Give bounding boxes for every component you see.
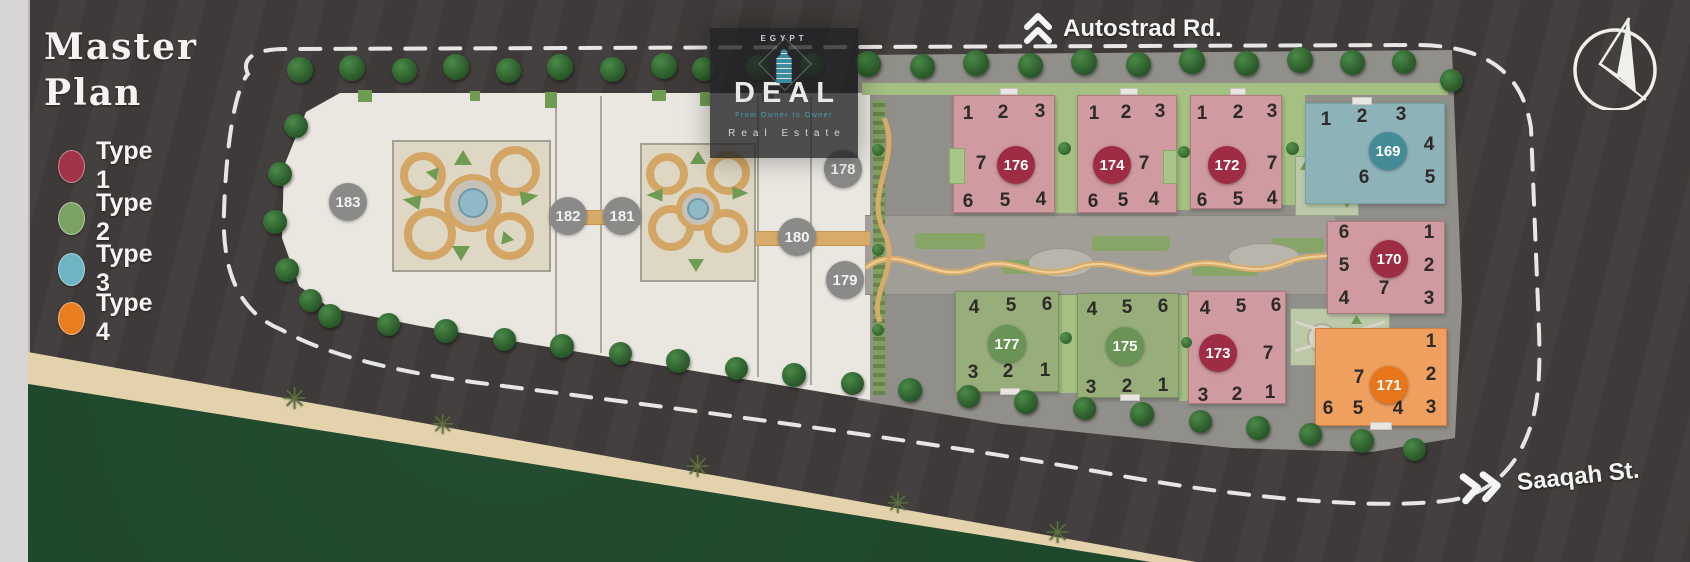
tree-icon [1130,402,1154,426]
amenity-green-patch [1092,236,1170,251]
plot-circle-182: 182 [549,197,587,235]
tree-icon [1287,47,1313,73]
tree-icon [275,258,299,282]
tree-icon [377,313,400,336]
unit-number: 1 [1032,360,1058,382]
unit-number: 1 [1081,103,1107,125]
planter-tab [358,90,372,102]
tree-icon [1340,50,1365,75]
tree-icon [651,53,677,79]
planter-tab [700,92,710,106]
unit-number: 6 [1034,294,1060,316]
tree-icon [299,289,322,312]
unit-number: 2 [995,361,1021,383]
unit-number: 3 [1190,385,1216,407]
unit-number: 5 [1331,255,1357,277]
unit-number: 1 [1313,109,1339,131]
building-badge-172: 172 [1208,146,1246,184]
unit-number: 5 [992,190,1018,212]
bush-icon [1286,142,1299,155]
tree-icon [1014,390,1038,414]
tree-icon [496,58,521,83]
plot-circle-180: 180 [778,218,816,256]
unit-number: 6 [955,191,981,213]
building-badge-175: 175 [1106,327,1144,365]
unit-number: 6 [1315,398,1341,420]
palm-tree-icon: ✳ [685,453,710,483]
south-road-label: Saaqah St. [1457,455,1641,506]
legend-item-type4: Type 4 [58,301,159,335]
planter-tab [652,90,666,101]
building-notch-lawn [1163,150,1177,184]
unit-number: 3 [1416,288,1442,310]
planter-tab [470,91,480,101]
tree-icon [1071,49,1097,75]
building-badge-174: 174 [1093,146,1131,184]
bush-icon [1178,146,1190,158]
type4-color-dot [58,302,85,335]
tree-icon [547,54,573,80]
unit-number: 3 [1388,104,1414,126]
unit-number: 5 [1228,296,1254,318]
north-road-label: Autostrad Rd. [1022,12,1222,46]
tree-icon [318,304,342,328]
tree-icon [268,162,292,186]
chevron-up-icon [1022,12,1054,46]
unit-number: 3 [960,362,986,384]
amenity-green-patch [915,233,985,249]
unit-number: 5 [1417,167,1443,189]
unit-number: 3 [1147,101,1173,123]
tree-icon [957,385,980,408]
unit-number: 7 [968,153,994,175]
unit-number: 4 [1416,134,1442,156]
building-badge-171: 171 [1370,366,1408,404]
tree-icon [666,349,690,373]
unit-number: 4 [1141,189,1167,211]
building-badge-170: 170 [1370,240,1408,278]
legend-item-type2: Type 2 [58,201,159,235]
legend-item-type1: Type 1 [58,149,159,183]
unit-number: 7 [1259,153,1285,175]
unit-number: 4 [961,297,987,319]
building-notch-lawn [949,148,965,184]
left-margin-strip [0,0,30,562]
legend-label: Type 2 [96,189,158,247]
tree-icon [855,51,881,77]
unit-number: 7 [1371,278,1397,300]
unit-number: 3 [1078,377,1104,399]
south-road-name: Saaqah St. [1516,457,1641,498]
type2-color-dot [58,202,85,235]
chevron-right-icon [1457,468,1510,505]
tree-icon [609,342,632,365]
palm-tree-icon: ✳ [1045,519,1070,549]
unit-number: 5 [1345,398,1371,420]
unit-number: 2 [1114,376,1140,398]
bush-icon [1060,332,1072,344]
type1-color-dot [58,150,85,183]
tree-icon [782,363,806,387]
unit-number: 4 [1079,299,1105,321]
ornamental-garden-east [640,143,756,282]
legend-item-type3: Type 3 [58,252,159,286]
bush-icon [872,144,884,156]
tree-icon [1299,423,1322,446]
unit-number: 4 [1192,298,1218,320]
tree-icon [392,58,417,83]
unit-number: 6 [1080,191,1106,213]
plot-circle-179: 179 [826,261,864,299]
tree-icon [434,319,458,343]
palm-tree-icon: ✳ [282,385,307,415]
tree-icon [1126,52,1151,77]
building-badge-169: 169 [1369,132,1407,170]
tree-icon [1179,48,1205,74]
unit-number: 5 [1114,297,1140,319]
legend-label: Type 4 [96,289,158,347]
ornamental-garden-west [392,140,551,272]
building-badge-173: 173 [1199,334,1237,372]
tree-icon [841,372,864,395]
unit-number: 4 [1331,288,1357,310]
north-lawn-strip [862,83,1448,95]
tree-icon [1018,53,1043,78]
tree-icon [725,357,748,380]
unit-number: 6 [1331,222,1357,244]
unit-number: 1 [1150,375,1176,397]
unit-number: 1 [1416,222,1442,244]
unit-number: 2 [990,102,1016,124]
unit-number: 3 [1027,101,1053,123]
tree-icon [284,114,308,138]
garden-pool [458,188,488,218]
unit-number: 5 [998,295,1024,317]
tree-icon [339,55,365,81]
tree-icon [1403,438,1426,461]
developer-watermark: EGYPT DEAL From Owner to Owner Real Esta… [710,28,858,158]
building-badge-177: 177 [988,325,1026,363]
unit-number: 7 [1255,343,1281,365]
tree-icon [1189,410,1212,433]
unit-number: 1 [1189,103,1215,125]
unit-number: 3 [1259,101,1285,123]
building-badge-176: 176 [997,146,1035,184]
unit-number: 2 [1113,102,1139,124]
palm-tree-icon: ✳ [431,411,454,439]
unit-number: 6 [1150,296,1176,318]
tree-icon [1440,69,1463,92]
unit-number: 6 [1351,167,1377,189]
logo-building-icon [749,43,819,83]
unit-number: 2 [1224,384,1250,406]
bush-icon [1181,337,1192,348]
unit-number: 6 [1263,295,1289,317]
north-road-name: Autostrad Rd. [1063,15,1222,43]
page-title: Master Plan [44,24,198,116]
unit-number: 5 [1110,190,1136,212]
tree-icon [263,210,287,234]
unit-number: 7 [1346,367,1372,389]
tree-icon [963,50,989,76]
logo-tagline: From Owner to Owner [735,112,833,119]
unit-number: 2 [1349,106,1375,128]
roof-tab [1352,97,1372,105]
type3-color-dot [58,253,85,286]
bush-icon [872,324,884,336]
tree-icon [1073,397,1096,420]
legend-label: Type 1 [96,137,158,195]
unit-number: 4 [1028,189,1054,211]
tree-icon [910,54,935,79]
tree-icon [898,378,922,402]
plot-circle-183: 183 [329,183,367,221]
title-line-1: Master [44,24,198,70]
roof-tab [1370,422,1392,430]
tree-icon [1392,50,1416,74]
unit-number: 1 [1257,382,1283,404]
master-plan-canvas: Master Plan Type 1 Type 2 Type 3 Type 4 … [0,0,1690,562]
bush-icon [872,244,884,256]
unit-number: 2 [1416,255,1442,277]
amenity-plaza [1028,248,1094,278]
tree-icon [600,57,625,82]
planter-tab [545,92,557,108]
bush-icon [1058,142,1071,155]
unit-number: 1 [955,103,981,125]
unit-number: 1 [1418,331,1444,353]
unit-number: 4 [1259,188,1285,210]
tree-icon [287,57,313,83]
unit-number: 2 [1418,364,1444,386]
unit-number: 3 [1418,397,1444,419]
roof-tab [1120,88,1138,95]
logo-subtitle: Real Estate [722,128,846,139]
amenity-plaza [1228,243,1300,271]
tree-icon [1246,416,1270,440]
roof-tab [1000,88,1018,95]
palm-tree-icon: ✳ [886,490,909,518]
unit-number: 6 [1189,190,1215,212]
tree-icon [550,334,574,358]
compass-icon [1570,12,1662,110]
unit-number: 7 [1131,153,1157,175]
title-line-2: Plan [44,70,198,116]
plot-circle-181: 181 [603,197,641,235]
tree-icon [1234,51,1259,76]
tree-icon [443,54,469,80]
roof-tab [1230,88,1246,95]
tree-icon [493,328,516,351]
unit-number: 5 [1225,189,1251,211]
tree-icon [1350,429,1374,453]
unit-number: 2 [1225,102,1251,124]
